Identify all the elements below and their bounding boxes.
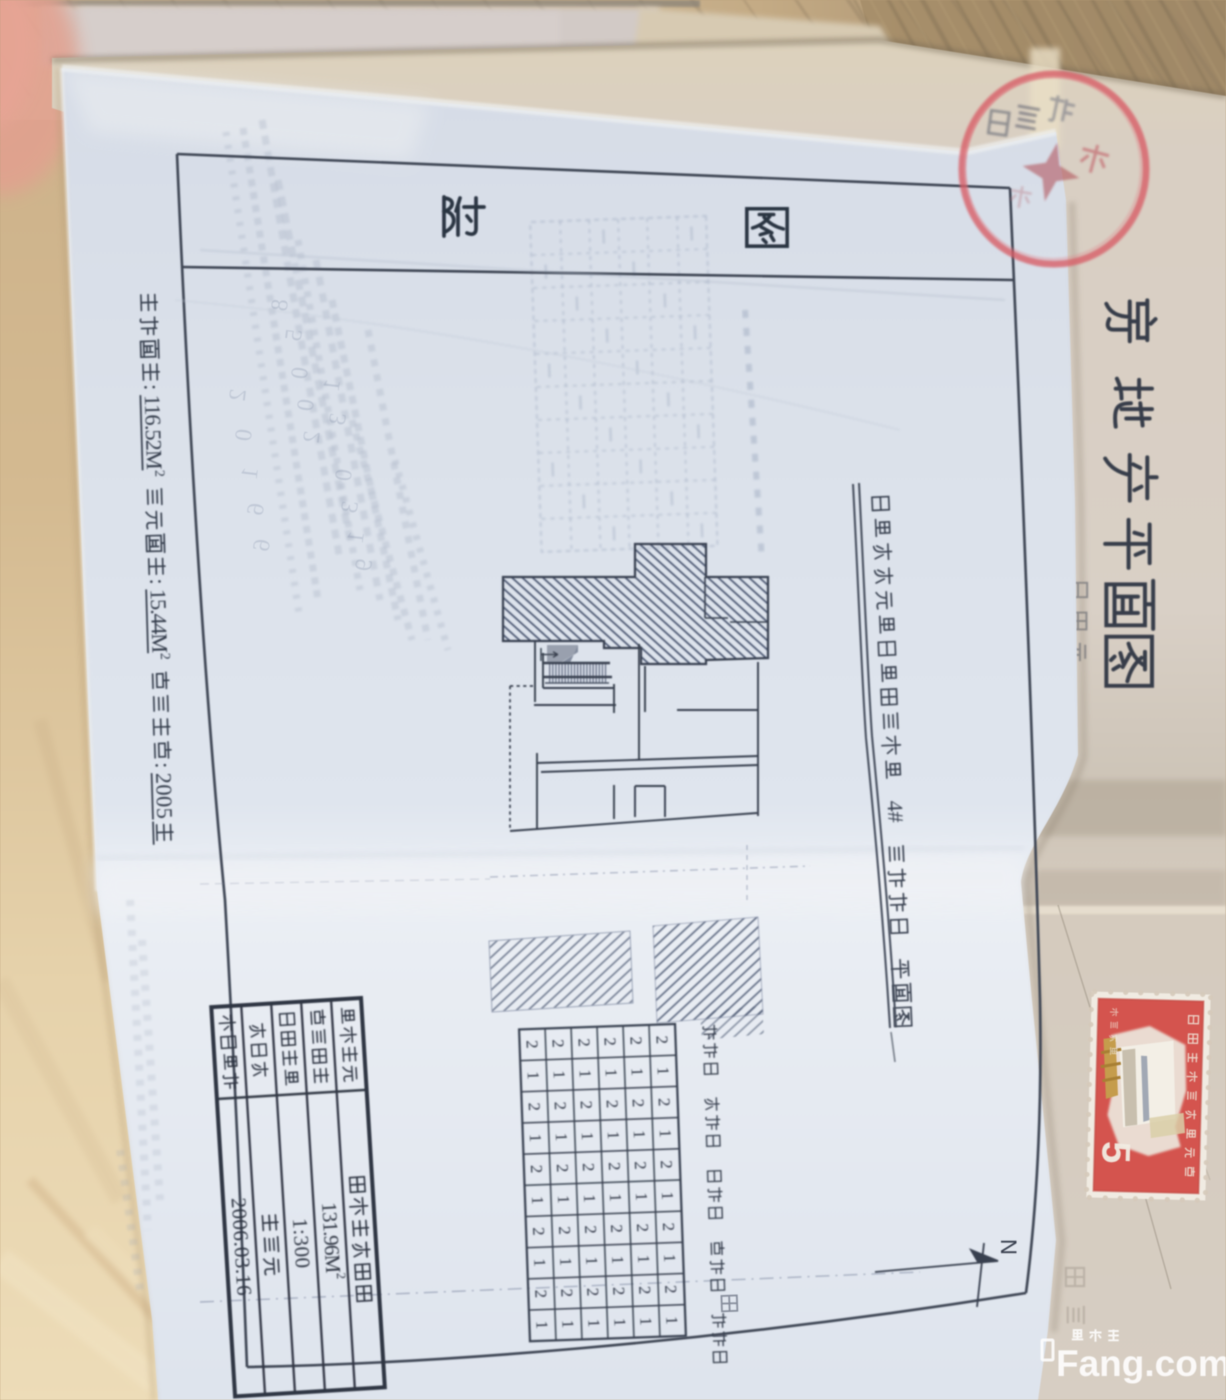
svg-text:2: 2 xyxy=(633,1223,652,1232)
svg-text:1: 1 xyxy=(526,1133,545,1142)
svg-text::: : xyxy=(151,762,176,769)
svg-text:N: N xyxy=(996,1239,1021,1255)
svg-text:1: 1 xyxy=(528,1196,547,1205)
svg-text:2: 2 xyxy=(605,1162,624,1171)
svg-text:1: 1 xyxy=(576,1069,595,1078)
svg-text:1: 1 xyxy=(658,1191,677,1200)
svg-text:2: 2 xyxy=(557,1288,576,1297)
svg-text:2005: 2005 xyxy=(151,772,177,819)
svg-text:1:300: 1:300 xyxy=(288,1217,315,1268)
svg-text:1: 1 xyxy=(584,1319,603,1328)
svg-text:1: 1 xyxy=(602,1068,621,1077)
svg-text:15.44M: 15.44M xyxy=(146,589,173,654)
svg-text:2: 2 xyxy=(555,1226,574,1235)
svg-text:2: 2 xyxy=(529,1227,548,1236)
svg-text:1: 1 xyxy=(636,1317,655,1326)
svg-text:2: 2 xyxy=(603,1099,622,1108)
svg-text:1: 1 xyxy=(656,1129,675,1138)
svg-text:1: 1 xyxy=(653,1066,672,1075)
svg-text:2: 2 xyxy=(574,1038,593,1047)
svg-text:1: 1 xyxy=(610,1318,629,1327)
svg-text:1: 1 xyxy=(552,1132,571,1141)
svg-text:2: 2 xyxy=(157,653,172,660)
svg-text:2: 2 xyxy=(579,1163,598,1172)
svg-text:1: 1 xyxy=(630,1130,649,1139)
svg-text:2: 2 xyxy=(629,1099,648,1108)
svg-text:1: 1 xyxy=(558,1319,577,1328)
svg-text:1: 1 xyxy=(628,1067,647,1076)
svg-text:2: 2 xyxy=(583,1287,602,1296)
svg-text:2: 2 xyxy=(334,1272,349,1279)
svg-text:4#: 4# xyxy=(882,800,908,823)
svg-text:2: 2 xyxy=(609,1286,628,1295)
svg-text:5: 5 xyxy=(1093,1141,1138,1164)
svg-text:1: 1 xyxy=(554,1195,573,1204)
svg-text:2: 2 xyxy=(631,1161,650,1170)
svg-text:2: 2 xyxy=(553,1164,572,1173)
svg-text:2: 2 xyxy=(151,470,166,477)
svg-text:1: 1 xyxy=(532,1320,551,1329)
svg-text:2: 2 xyxy=(626,1036,645,1045)
svg-text:116.52M: 116.52M xyxy=(140,394,167,470)
svg-text:1: 1 xyxy=(660,1253,679,1262)
svg-text:2: 2 xyxy=(551,1101,570,1110)
svg-text::: : xyxy=(139,384,164,391)
svg-text:131.96M: 131.96M xyxy=(317,1202,345,1275)
svg-text:2: 2 xyxy=(525,1102,544,1111)
svg-text:2: 2 xyxy=(657,1160,676,1169)
svg-text:1: 1 xyxy=(606,1193,625,1202)
svg-text:2: 2 xyxy=(659,1222,678,1231)
svg-text:Fang.com: Fang.com xyxy=(1056,1343,1226,1384)
svg-text:1: 1 xyxy=(632,1192,651,1201)
svg-text:1: 1 xyxy=(550,1070,569,1079)
svg-text:1: 1 xyxy=(662,1316,681,1325)
svg-text:1: 1 xyxy=(530,1258,549,1267)
svg-text:2: 2 xyxy=(531,1289,550,1298)
svg-text:1: 1 xyxy=(580,1194,599,1203)
svg-text:2: 2 xyxy=(661,1285,680,1294)
svg-text:2: 2 xyxy=(600,1037,619,1046)
svg-text:1: 1 xyxy=(604,1131,623,1140)
svg-text:2: 2 xyxy=(581,1225,600,1234)
svg-text:2: 2 xyxy=(655,1098,674,1107)
svg-text:2: 2 xyxy=(607,1224,626,1233)
svg-text:1: 1 xyxy=(524,1071,543,1080)
svg-text:1: 1 xyxy=(608,1255,627,1264)
svg-text:1: 1 xyxy=(556,1257,575,1266)
svg-text:2: 2 xyxy=(522,1040,541,1049)
svg-text::: : xyxy=(145,578,170,585)
svg-text:1: 1 xyxy=(582,1256,601,1265)
svg-text:1: 1 xyxy=(634,1254,653,1263)
svg-text:2: 2 xyxy=(548,1039,567,1048)
svg-text:2: 2 xyxy=(577,1100,596,1109)
svg-text:2: 2 xyxy=(652,1035,671,1044)
svg-text:2: 2 xyxy=(527,1164,546,1173)
svg-text:1: 1 xyxy=(578,1131,597,1140)
svg-text:2: 2 xyxy=(635,1286,654,1295)
